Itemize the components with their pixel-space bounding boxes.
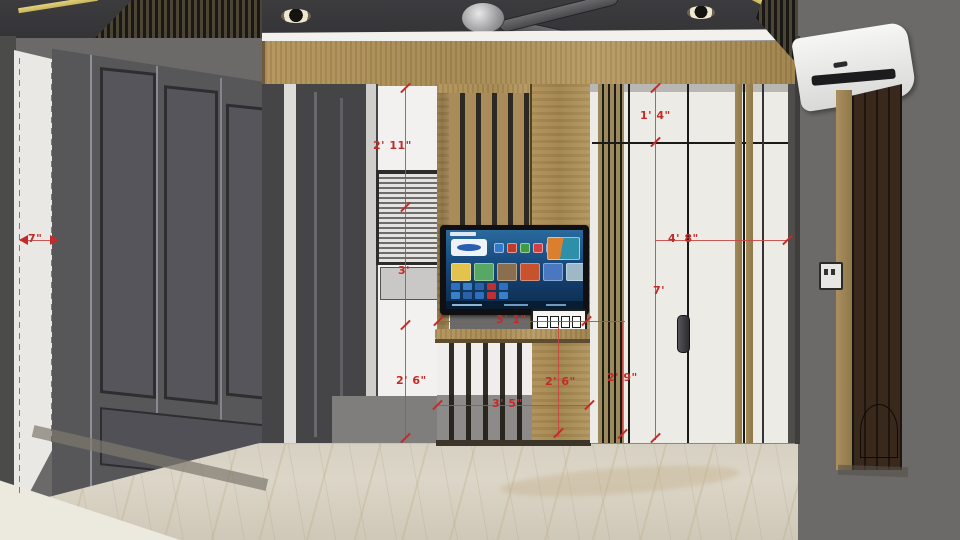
panel-seam bbox=[628, 84, 630, 443]
switch-toggle bbox=[824, 269, 828, 275]
tv-app-tile bbox=[451, 292, 460, 299]
tv-shelf bbox=[435, 329, 591, 339]
dimension-line-3ft1 bbox=[437, 321, 625, 322]
switch-toggle bbox=[831, 269, 835, 275]
wardrobe-seam bbox=[90, 54, 92, 494]
dimension-label-right-panel-height: 7' bbox=[653, 285, 665, 296]
tv-app-tile bbox=[533, 243, 543, 253]
left-wall-gap-strip bbox=[14, 50, 54, 522]
wardrobe-side-panel bbox=[262, 84, 378, 443]
tv-app-row bbox=[451, 263, 583, 281]
dimension-label-tv-width: 3' 1" bbox=[496, 314, 527, 325]
tv-app-tile bbox=[499, 292, 508, 299]
tv-app-tile bbox=[543, 263, 563, 281]
dimension-label-top-panel: 1' 4" bbox=[640, 110, 671, 121]
tv-app-tile bbox=[487, 292, 496, 299]
tv-logo bbox=[450, 232, 476, 236]
dimension-label-left-gap: 7" bbox=[28, 233, 42, 244]
tv-small-apps-row1 bbox=[451, 283, 508, 290]
tv-app-tile bbox=[520, 243, 530, 253]
dimension-label-upper-partition: 2' 11" bbox=[373, 140, 412, 151]
tv-app-tile bbox=[475, 292, 484, 299]
dimension-arrow bbox=[14, 235, 28, 245]
wardrobe-door-panel bbox=[100, 67, 156, 399]
left-wall-edge bbox=[0, 36, 16, 540]
tv-app-tile bbox=[520, 263, 540, 281]
tv-app-tile bbox=[497, 263, 517, 281]
back-floor-shadow bbox=[332, 396, 452, 443]
entry-door[interactable] bbox=[852, 84, 902, 470]
dimension-extent-line bbox=[19, 58, 20, 496]
socket-module bbox=[537, 316, 548, 328]
tv-bar-text bbox=[452, 304, 482, 306]
right-accent-slat-cluster bbox=[598, 84, 624, 443]
dimension-arrow bbox=[50, 235, 64, 245]
panel-horizontal-seam bbox=[592, 142, 788, 144]
partition-lower-slats bbox=[437, 343, 532, 443]
tv-app-tile bbox=[463, 292, 472, 299]
tv-app-tile bbox=[494, 243, 504, 253]
tv-bar-text bbox=[504, 304, 528, 306]
recessed-light-left bbox=[281, 9, 311, 23]
tv-app-tile bbox=[566, 263, 583, 281]
door-arc-detail bbox=[860, 404, 898, 458]
side-panel-seam bbox=[340, 98, 343, 435]
partition-base-shadow bbox=[436, 440, 591, 446]
partition-upper-slats bbox=[449, 92, 530, 228]
tv-app-tile bbox=[507, 243, 517, 253]
tv-hero-graphic bbox=[457, 244, 481, 251]
interior-render: 7" 2' 11" 3' 2' 6" 1' 4" 7' 4' 8" 3' 1" … bbox=[0, 0, 960, 540]
ac-vent bbox=[811, 69, 896, 86]
tv-app-tile bbox=[474, 263, 494, 281]
tv-app-tile bbox=[451, 283, 460, 290]
dimension-label-right-panel-width: 4' 8" bbox=[668, 233, 699, 244]
wardrobe-seam bbox=[220, 78, 222, 474]
dimension-label-partition-width: 3' 5" bbox=[492, 398, 523, 409]
tv-app-tile bbox=[487, 283, 496, 290]
tv-app-tile bbox=[451, 263, 471, 281]
dimension-label-partition-lower: 2' 6" bbox=[545, 376, 576, 387]
tv-bottom-bar bbox=[446, 301, 583, 309]
dimension-label-lower-left: 2' 6" bbox=[396, 375, 427, 386]
socket-module bbox=[572, 316, 581, 328]
tv-hero-tile bbox=[451, 239, 487, 256]
accent-wood-strip bbox=[746, 84, 753, 443]
ac-display bbox=[833, 61, 848, 68]
tv-app-tile bbox=[499, 283, 508, 290]
tv-screen[interactable] bbox=[446, 230, 583, 309]
panel-seam bbox=[743, 84, 745, 443]
dimension-label-window-height: 3' bbox=[398, 265, 410, 276]
recessed-light-right bbox=[687, 6, 715, 19]
panel-seam bbox=[687, 84, 689, 443]
side-panel-seam bbox=[314, 92, 317, 437]
wood-bulkhead-beam bbox=[262, 41, 798, 90]
wardrobe-door-panel bbox=[164, 85, 218, 405]
ceiling-fan-hub bbox=[461, 2, 505, 34]
dimension-extent-line bbox=[51, 62, 52, 446]
socket-module bbox=[561, 316, 570, 328]
dimension-label-handle-panel: 2' 9" bbox=[607, 372, 638, 383]
tv-bar-text bbox=[546, 304, 566, 306]
wardrobe-door-handle[interactable] bbox=[677, 315, 690, 353]
tv-app-tile bbox=[463, 283, 472, 290]
side-panel-light-strip bbox=[284, 84, 296, 443]
panel-seam bbox=[762, 84, 764, 443]
tv-small-apps-row2 bbox=[451, 292, 508, 299]
light-switch[interactable] bbox=[819, 262, 843, 290]
tv-photo-tile bbox=[547, 237, 580, 260]
accent-wood-strip bbox=[735, 84, 742, 443]
tv-app-tile bbox=[475, 283, 484, 290]
side-panel-light-strip bbox=[366, 84, 376, 443]
